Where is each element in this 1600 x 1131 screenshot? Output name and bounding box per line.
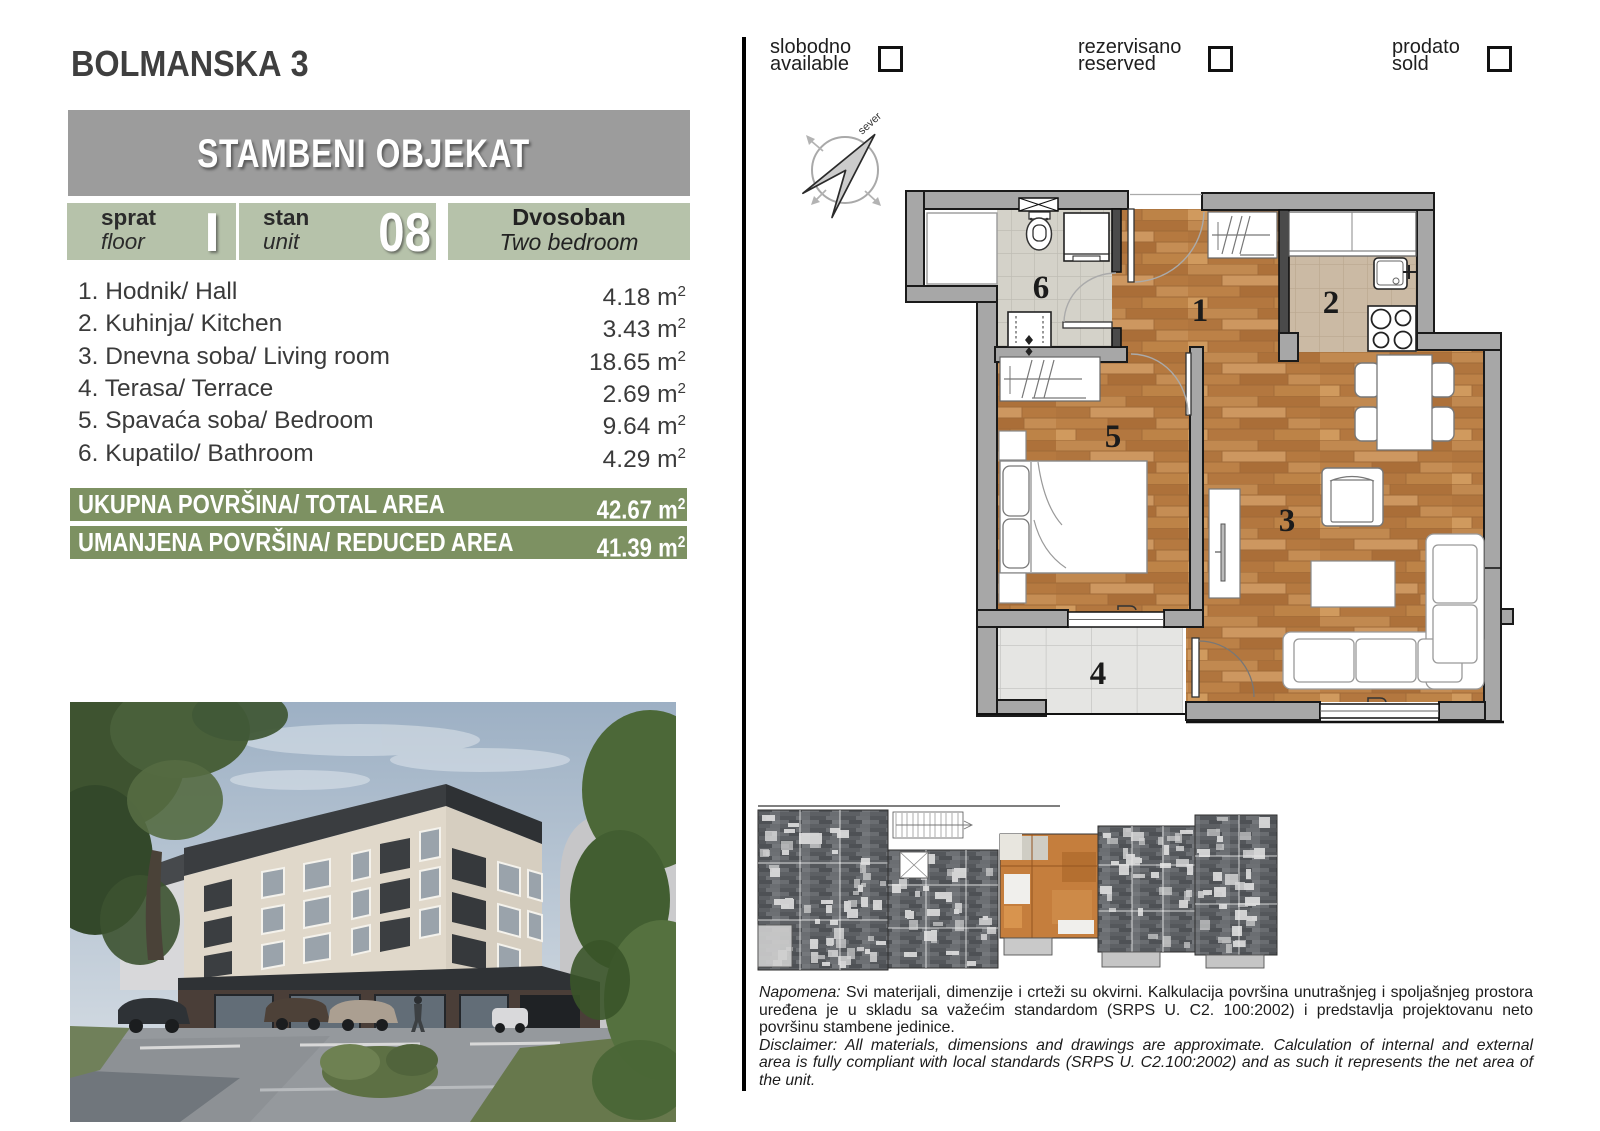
svg-text:2: 2: [1323, 285, 1340, 321]
svg-text:1: 1: [1192, 293, 1209, 329]
svg-text:3: 3: [1279, 503, 1296, 539]
svg-text:5: 5: [1105, 419, 1122, 455]
svg-text:4: 4: [1090, 656, 1107, 692]
svg-text:sever: sever: [856, 110, 884, 137]
svg-text:6: 6: [1033, 270, 1050, 306]
